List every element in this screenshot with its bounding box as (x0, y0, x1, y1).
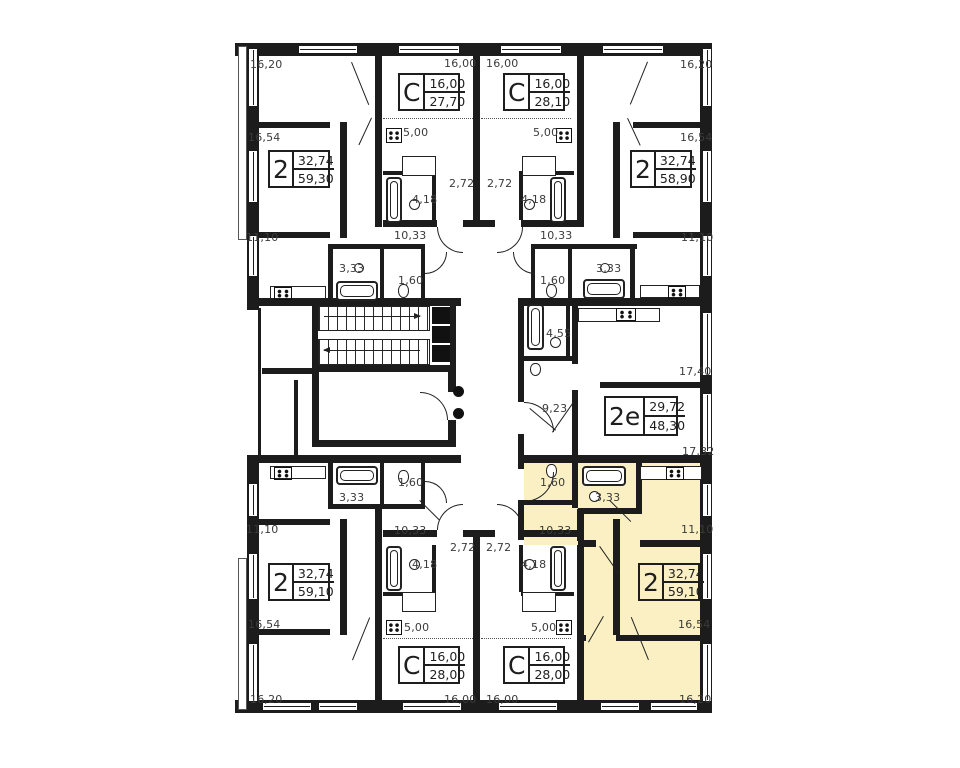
wall-segment (294, 380, 298, 455)
wall-segment (315, 365, 456, 372)
window-mullion (400, 49, 458, 50)
elevator-shaft (432, 307, 450, 324)
balcony-frame (238, 558, 247, 710)
window-mullion (502, 49, 560, 50)
stairs-arrow-up (324, 316, 420, 317)
window-mullion (707, 555, 708, 598)
staircase-landing (318, 330, 430, 340)
window-mullion (652, 706, 696, 707)
wall-segment (480, 530, 495, 537)
window-mullion (264, 706, 310, 707)
window-mullion (707, 485, 708, 515)
elevator-shaft (432, 326, 450, 343)
apartment-hotspot-right-2e[interactable] (518, 306, 700, 461)
window-mullion (500, 706, 556, 707)
door-swing-arc (420, 392, 448, 420)
balcony-frame (238, 46, 247, 240)
window-mullion (707, 152, 708, 201)
fire-cabinet-knob (453, 408, 464, 419)
fire-cabinet-knob (453, 386, 464, 397)
elevator-shaft (432, 345, 450, 362)
wall-segment (312, 440, 456, 447)
window-mullion (602, 706, 638, 707)
window-mullion (300, 49, 356, 50)
apartment-hotspot-bottom-studio-left[interactable] (382, 537, 473, 700)
window-mullion (604, 49, 662, 50)
wall-segment (262, 368, 314, 374)
window-mullion (707, 395, 708, 451)
wall-segment (473, 530, 480, 700)
apartment-hotspot-bottom-right-2[interactable] (518, 463, 700, 700)
wall-segment (463, 530, 480, 537)
apartment-hotspot-top-studio-left[interactable] (382, 56, 473, 236)
wall-segment (450, 306, 456, 372)
window-mullion (320, 706, 356, 707)
window-mullion (707, 645, 708, 700)
window-mullion (404, 706, 460, 707)
floor-plan-canvas: 232,7459,30С16,0027,70С16,0028,10232,745… (0, 0, 960, 768)
apartment-hotspot-top-right-2[interactable] (524, 56, 700, 306)
stairs-arrow-down (324, 350, 420, 351)
wall-segment (473, 56, 480, 227)
wall-segment (258, 308, 261, 458)
floor-plan: 232,7459,30С16,0027,70С16,0028,10232,745… (0, 0, 960, 768)
